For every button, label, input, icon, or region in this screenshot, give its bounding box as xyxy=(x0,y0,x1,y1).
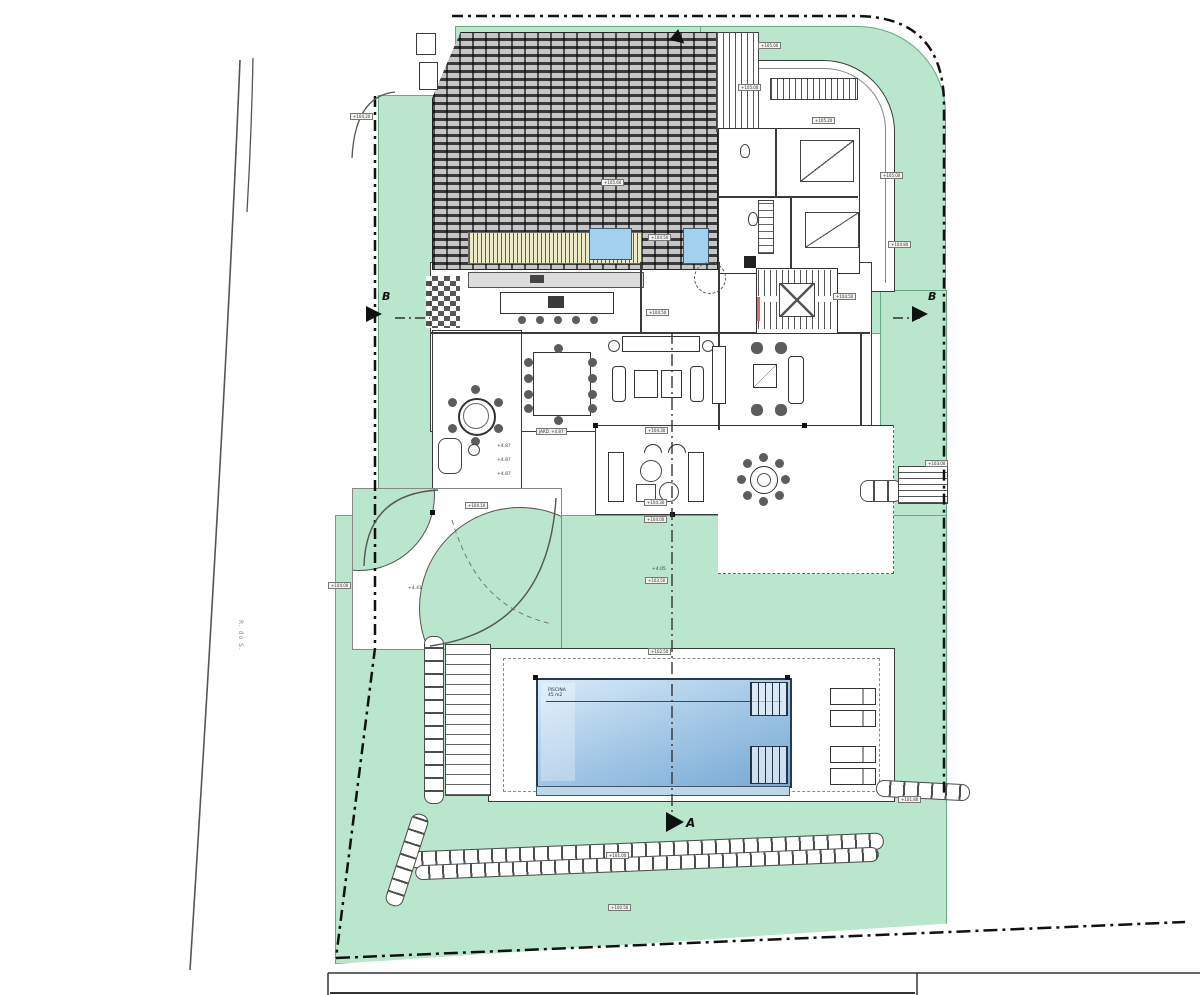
column-dot-2 xyxy=(802,423,807,428)
driveway xyxy=(352,488,562,650)
pool-label: PISCINA 45 m2 xyxy=(548,688,566,698)
elevation-tag: +105.20 xyxy=(812,117,835,124)
sofa-left xyxy=(612,366,626,402)
elevation-tag: +105.00 xyxy=(880,172,903,179)
console-cabinet xyxy=(712,346,726,404)
kitchen-sink xyxy=(530,275,544,283)
titleblock-ticks xyxy=(328,973,917,995)
roof-side-stair xyxy=(716,32,759,132)
site-plan-sheet: { "drawing": { "type": "architectural-si… xyxy=(0,0,1200,995)
tv-sideboard xyxy=(622,336,700,352)
coffee-table-1 xyxy=(634,370,658,398)
pool-infinity-trough xyxy=(536,786,790,796)
elevation-tag: +104.80 xyxy=(888,241,911,248)
bed-2 xyxy=(805,212,859,248)
pool-steps-bottom xyxy=(750,746,788,784)
elevation-tag: +105.60 xyxy=(601,179,624,186)
pool: PISCINA 45 m2 xyxy=(536,678,792,788)
elevation-tag: +103.50 xyxy=(645,577,668,584)
section-marker-b-left-arrow xyxy=(366,306,382,322)
side-table-small xyxy=(468,444,480,456)
level-text: +4.41 xyxy=(408,586,422,591)
bathroom-partition-v2 xyxy=(790,196,792,272)
driveway-corner-garden-br xyxy=(419,507,562,650)
round-table xyxy=(458,398,496,436)
speaker-left xyxy=(608,340,620,352)
elevation-tag: +104.30 xyxy=(645,427,668,434)
house-east-wall xyxy=(860,332,862,426)
elevation-tag: +104.50 xyxy=(833,293,856,300)
elevation-tag: +104.00 xyxy=(644,516,667,523)
terrace-round-table-1 xyxy=(640,460,662,482)
level-text: +4.87 xyxy=(497,444,511,449)
elevation-tag: +104.00 xyxy=(328,582,351,589)
elevation-tag: +104.30 xyxy=(644,499,667,506)
bathroom-partition-v1 xyxy=(775,128,777,196)
coffee-table-2 xyxy=(661,370,682,398)
sofa-right xyxy=(690,366,704,402)
shower-dark xyxy=(744,256,756,268)
pool-lap-line xyxy=(546,701,782,702)
gate-pillar-lower xyxy=(419,62,438,90)
column-dot-6 xyxy=(430,510,435,515)
section-marker-b-right-label: B xyxy=(928,290,936,303)
terrace-sofa-right xyxy=(688,452,704,502)
water-feature-left xyxy=(589,228,632,260)
elevation-tag: +101.00 xyxy=(606,852,629,859)
kitchen-hob xyxy=(548,296,564,308)
toilet-1 xyxy=(740,144,750,158)
stone-slab-steps xyxy=(445,644,491,796)
kitchen-counter xyxy=(468,272,644,288)
bedroom-partition-h xyxy=(718,196,858,198)
outdoor-dining-table xyxy=(750,466,778,494)
road-edge-line xyxy=(190,60,240,970)
outdoor-dining-table-center xyxy=(757,473,771,487)
main-stair xyxy=(756,268,838,334)
elevation-tag: +105.00 xyxy=(738,84,761,91)
stone-wall-pool-west xyxy=(424,636,444,804)
dining-chairs xyxy=(524,358,533,367)
road-name-label: R. do S. xyxy=(237,620,244,651)
terrace-sofa-left xyxy=(608,452,624,502)
toilet-2 xyxy=(748,212,758,226)
elevation-tag: +104.10 xyxy=(465,502,488,509)
column-dot-4 xyxy=(785,675,790,680)
level-text: +4.87 xyxy=(497,472,511,477)
garden-steps-right xyxy=(898,466,948,504)
column-dot-5 xyxy=(670,512,675,517)
pool-label-line2: 45 m2 xyxy=(548,693,562,698)
wardrobe-strip xyxy=(758,200,774,254)
column-dot-3 xyxy=(533,675,538,680)
column-dot-1 xyxy=(593,423,598,428)
round-table-inner xyxy=(463,403,489,429)
dining-table xyxy=(533,352,591,416)
gate-pillar-upper xyxy=(416,33,436,55)
elevation-tag: +102.50 xyxy=(648,648,671,655)
upper-terrace-stair xyxy=(770,78,858,100)
lounge-chair xyxy=(438,438,462,474)
sun-lounger-1 xyxy=(830,688,876,705)
level-text: +4.87 xyxy=(497,458,511,463)
section-marker-b-right-arrow xyxy=(912,306,928,322)
sitting-armchairs xyxy=(751,342,763,354)
elevation-tag: +105.00 xyxy=(758,42,781,49)
rocks-right-mid xyxy=(860,480,902,502)
sun-lounger-3 xyxy=(830,746,876,763)
sitting-sofa-east xyxy=(788,356,804,404)
driveway-corner-garden-tl xyxy=(352,488,435,571)
sun-lounger-2 xyxy=(830,710,876,727)
pergola-grid xyxy=(426,276,460,328)
elevation-tag: +104.50 xyxy=(648,234,671,241)
road-edge-line-short xyxy=(247,58,253,212)
elevation-tag: +100.50 xyxy=(608,904,631,911)
elevation-tag: +104.50 xyxy=(646,309,669,316)
level-text: +4.05 xyxy=(652,567,666,572)
elevation-tag: +104.20 xyxy=(350,113,373,120)
hall-wall-v1 xyxy=(640,262,642,332)
elevation-tag: +101.80 xyxy=(898,796,921,803)
elevation-tag: +103.00 xyxy=(925,460,948,467)
stair-landing xyxy=(779,283,815,317)
elevation-tag: JARD. +4.87 xyxy=(536,428,567,435)
pool-steps-top xyxy=(750,682,788,716)
sitting-table xyxy=(753,364,777,388)
section-marker-b-left-label: B xyxy=(382,290,390,303)
water-feature-right xyxy=(683,228,709,264)
entry-column-circle xyxy=(694,262,726,294)
section-marker-a-arrow xyxy=(666,812,684,832)
stair-red-mark xyxy=(757,297,760,321)
section-marker-a-label: A xyxy=(686,816,695,830)
sun-lounger-4 xyxy=(830,768,876,785)
bed-1 xyxy=(800,140,854,182)
outdoor-dining-chairs xyxy=(759,497,768,506)
bar-stools xyxy=(518,316,526,324)
